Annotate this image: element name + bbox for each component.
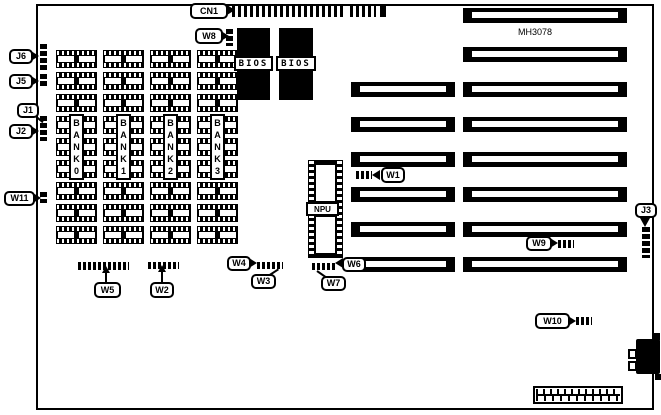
memory-chip (103, 204, 144, 222)
w4-w3-jumper (257, 262, 283, 269)
memory-chip (150, 226, 191, 244)
j6-pin-header (40, 44, 47, 71)
expansion-slot-16bit-segment-4 (351, 187, 455, 202)
w1-callout: W1 (381, 167, 405, 183)
memory-chip (150, 50, 191, 68)
w3-callout: W3 (251, 274, 276, 289)
w6-w7-jumper (312, 263, 337, 270)
w8-label: W8 (202, 32, 216, 41)
bank-label-2: BANK2 (163, 114, 178, 180)
memory-chip (56, 72, 97, 90)
j6-label: J6 (16, 52, 26, 61)
memory-chip (150, 182, 191, 200)
memory-chip (197, 226, 238, 244)
w2-arrow-icon (158, 265, 166, 272)
j1-callout: J1 (17, 103, 39, 118)
power-connector (533, 386, 623, 404)
cn1-connector (350, 6, 376, 17)
expansion-slot-16bit-segment-6 (351, 257, 455, 272)
expansion-slot-2 (463, 47, 627, 62)
bios-chip-1-label: BIOS (234, 56, 273, 71)
j1-label: J1 (23, 106, 33, 115)
memory-chip (103, 226, 144, 244)
memory-chip (197, 94, 238, 112)
w1-jumper (356, 171, 372, 179)
w7-label: W7 (327, 279, 341, 288)
memory-chip (103, 72, 144, 90)
keyboard-connector-pin (628, 361, 637, 371)
keyboard-connector (652, 333, 660, 340)
j5-callout: J5 (9, 74, 33, 89)
memory-chip (197, 204, 238, 222)
power-connector-teeth (536, 396, 620, 401)
motherboard-diagram: CN1 W8 BIOS BIOS J6 J5 J1 J2 W11 BANK0BA… (0, 0, 661, 415)
w5-callout: W5 (94, 282, 121, 298)
npu-socket-window (316, 165, 335, 201)
w11-jumper (40, 192, 47, 203)
memory-chip (150, 204, 191, 222)
j6-callout: J6 (9, 49, 33, 64)
w9-label: W9 (532, 239, 546, 248)
w5-label: W5 (101, 286, 115, 295)
w6-label: W6 (347, 260, 361, 269)
w10-label: W10 (543, 317, 562, 326)
expansion-slot-16bit-segment-2 (351, 117, 455, 132)
npu-label: NPU (306, 202, 339, 216)
keyboard-connector (655, 374, 661, 380)
cn1-arrow-icon (227, 5, 235, 15)
w2-label: W2 (155, 286, 169, 295)
cn1-callout: CN1 (190, 3, 228, 19)
keyboard-connector-pin (628, 349, 637, 359)
j3-pin-header (642, 227, 650, 258)
cn1-connector (232, 6, 346, 17)
w9-callout: W9 (526, 236, 552, 251)
j2-label: J2 (16, 127, 26, 136)
expansion-slot-7 (463, 222, 627, 237)
w1-label: W1 (386, 171, 400, 180)
w3-label: W3 (257, 277, 271, 286)
memory-chip (56, 182, 97, 200)
expansion-slot-8 (463, 257, 627, 272)
j5-pin-header (40, 74, 47, 86)
expansion-slot-16bit-segment-3 (351, 152, 455, 167)
w5-arrow-icon (102, 266, 110, 273)
keyboard-connector (636, 339, 660, 374)
w4-label: W4 (232, 259, 246, 268)
memory-chip (197, 50, 238, 68)
w1-arrow-icon (372, 170, 380, 180)
memory-chip (56, 204, 97, 222)
npu-socket-window (316, 217, 335, 253)
bank-label-1: BANK1 (116, 114, 131, 180)
memory-chip (150, 72, 191, 90)
board-model-number: MH3078 (518, 27, 552, 37)
expansion-slot-3 (463, 82, 627, 97)
j3-callout: J3 (635, 203, 657, 218)
expansion-slot-16bit-segment-5 (351, 222, 455, 237)
w9-jumper (558, 240, 574, 248)
expansion-slot-4 (463, 117, 627, 132)
cn1-connector (380, 6, 386, 17)
memory-chip (56, 94, 97, 112)
memory-chip (103, 94, 144, 112)
memory-chip (103, 182, 144, 200)
memory-chip (103, 50, 144, 68)
memory-chip (197, 72, 238, 90)
expansion-slot-6 (463, 187, 627, 202)
w2-callout: W2 (150, 282, 174, 298)
w11-callout: W11 (4, 191, 35, 206)
j5-label: J5 (16, 77, 26, 86)
w4-callout: W4 (227, 256, 251, 271)
power-connector-pins (536, 389, 620, 396)
memory-chip (56, 226, 97, 244)
bios-chip-2-label: BIOS (276, 56, 316, 71)
cn1-label: CN1 (200, 7, 218, 16)
w7-callout: W7 (321, 276, 346, 291)
w8-callout: W8 (195, 28, 223, 44)
expansion-slot-1 (463, 8, 627, 23)
expansion-slot-16bit-segment-1 (351, 82, 455, 97)
bank-label-0: BANK0 (69, 114, 84, 180)
w11-label: W11 (10, 194, 28, 203)
bank-label-3: BANK3 (210, 114, 225, 180)
w6-callout: W6 (342, 257, 366, 272)
w10-jumper (576, 317, 592, 325)
memory-chip (197, 182, 238, 200)
expansion-slot-5 (463, 152, 627, 167)
j3-label: J3 (641, 206, 651, 215)
memory-chip (150, 94, 191, 112)
memory-chip (56, 50, 97, 68)
j2-callout: J2 (9, 124, 33, 139)
j3-arrow-icon (640, 218, 650, 227)
w10-callout: W10 (535, 313, 570, 329)
